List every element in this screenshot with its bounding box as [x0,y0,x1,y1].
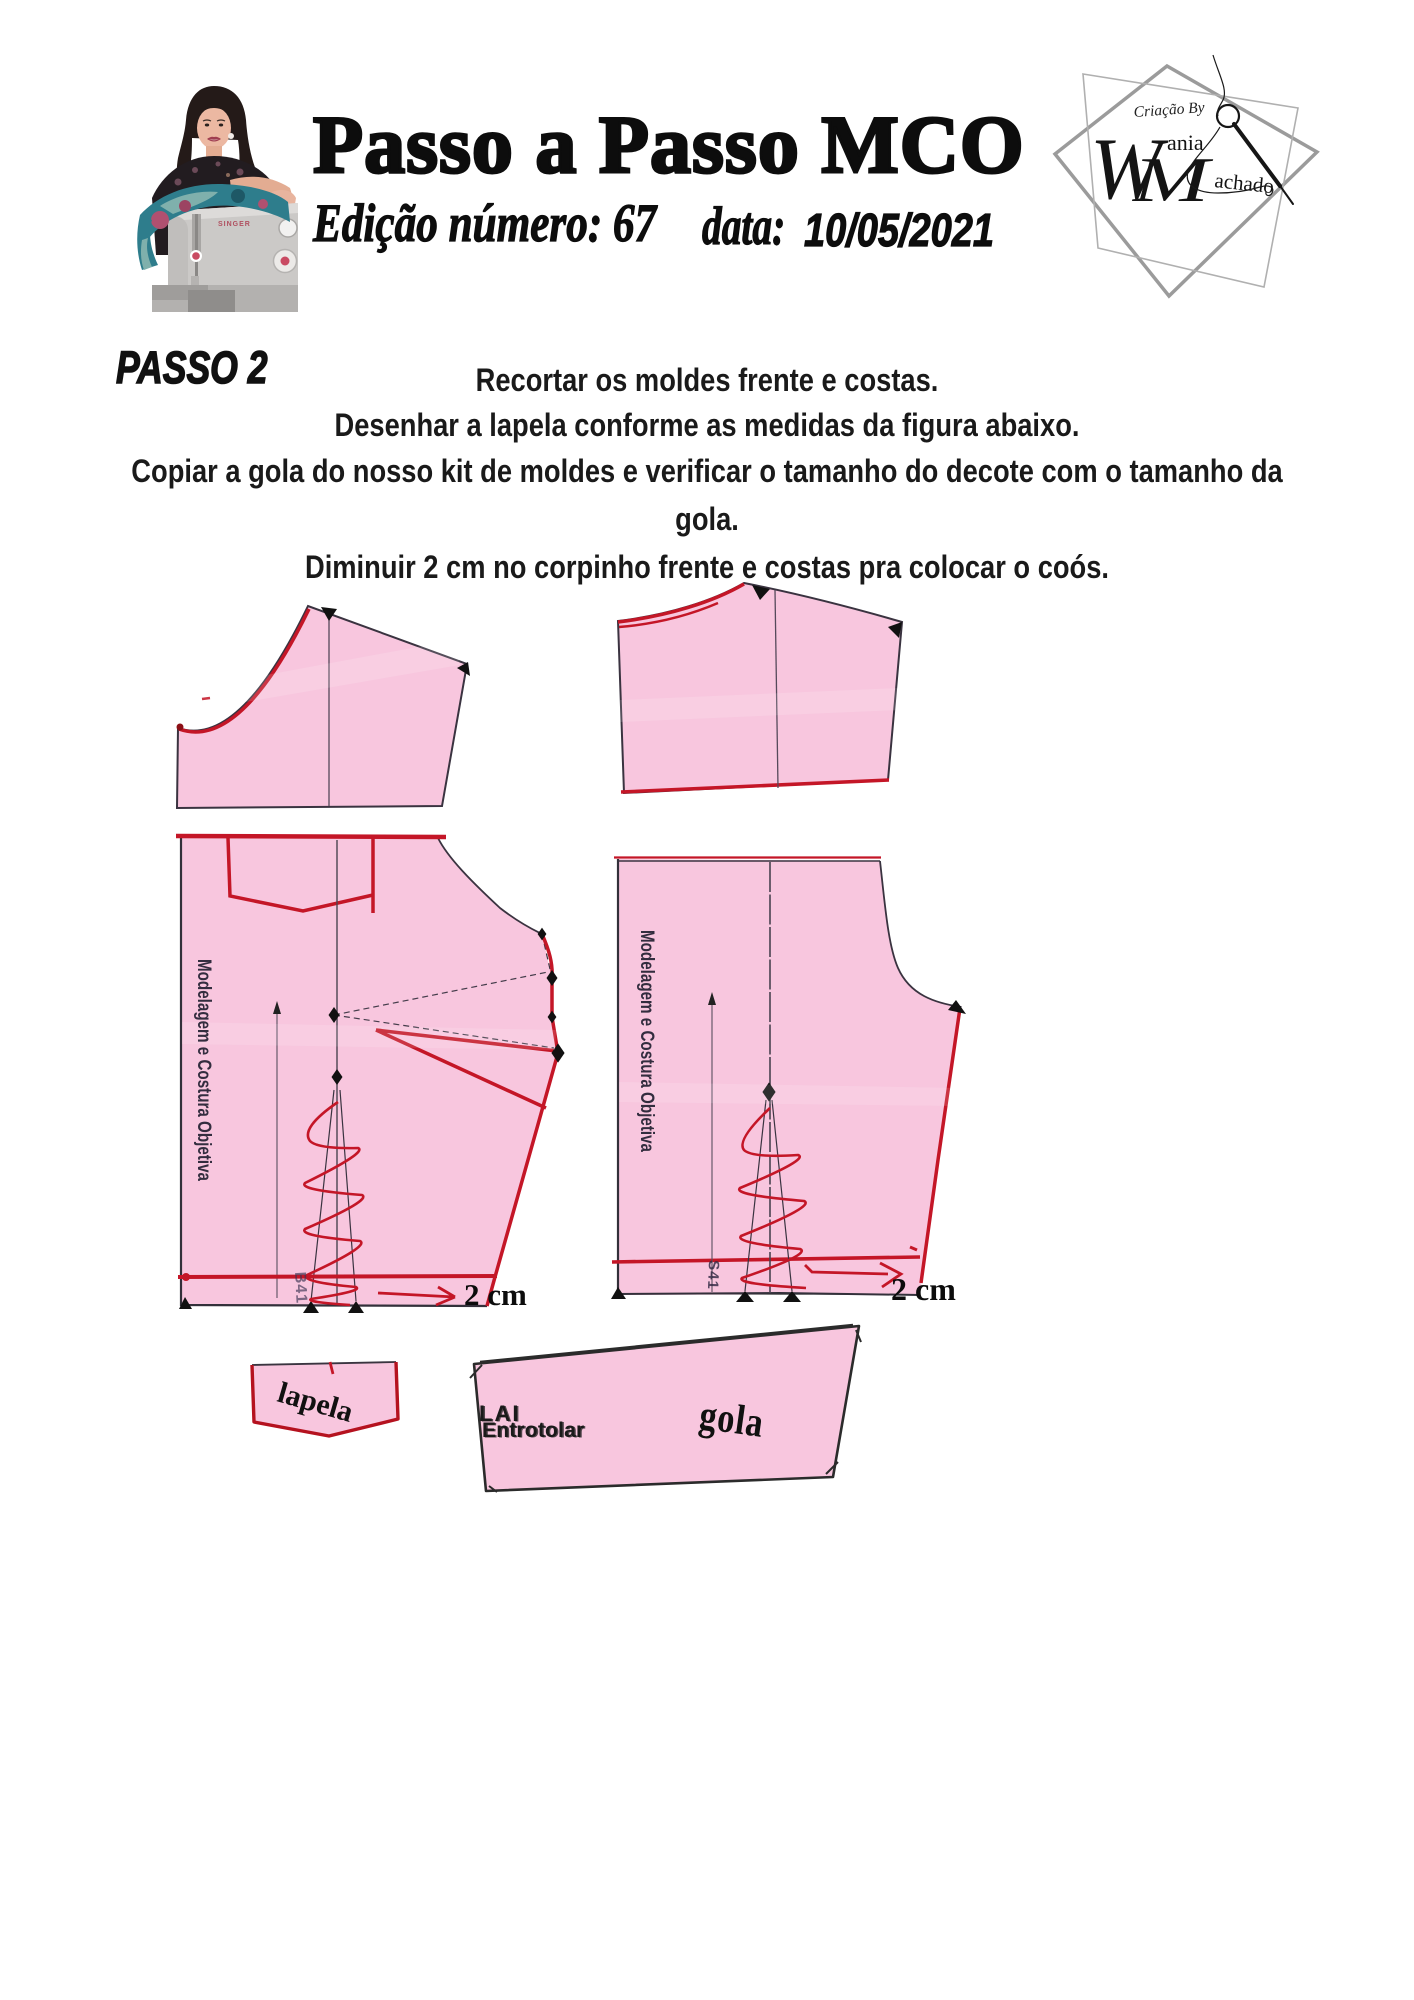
svg-text:Entrotolar: Entrotolar [483,1420,585,1443]
svg-text:B41: B41 [291,1271,310,1304]
svg-text:Modelagem e Costura Objetiva: Modelagem e Costura Objetiva [636,930,657,1152]
svg-text:gola: gola [697,1392,767,1446]
svg-text:2 cm: 2 cm [464,1277,527,1312]
svg-text:2 cm: 2 cm [891,1271,956,1307]
svg-text:S41: S41 [704,1260,722,1290]
svg-text:Modelagem e Costura Objetiva: Modelagem e Costura Objetiva [193,959,214,1181]
